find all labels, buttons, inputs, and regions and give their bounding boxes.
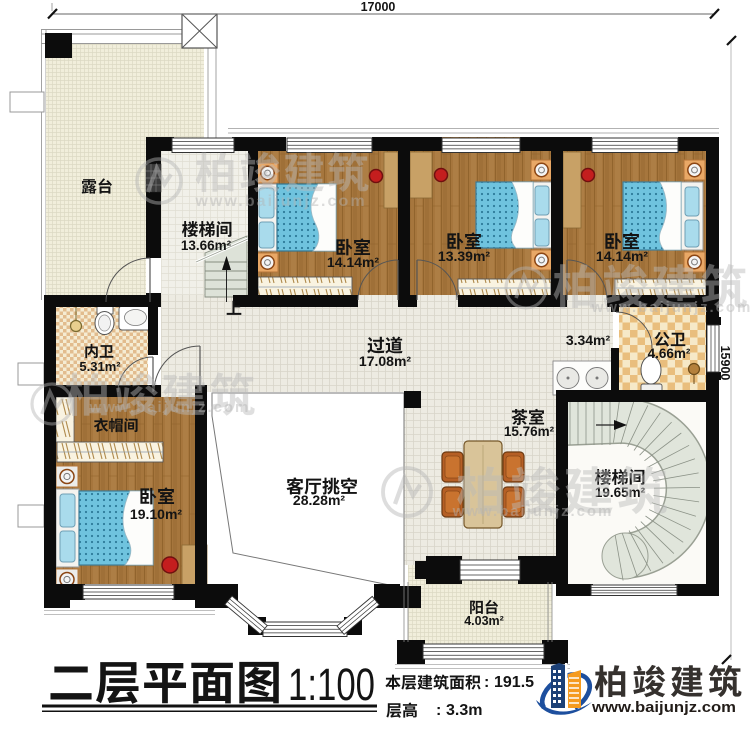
svg-text:17.08m²: 17.08m² <box>359 353 411 369</box>
svg-text::: : <box>436 702 441 719</box>
svg-text:17000: 17000 <box>361 0 396 14</box>
svg-text:www.baijunjz.com: www.baijunjz.com <box>452 503 614 520</box>
svg-text:4.66m²: 4.66m² <box>648 346 691 361</box>
svg-text:13.66m²: 13.66m² <box>181 238 232 253</box>
svg-text:1:100: 1:100 <box>288 659 375 710</box>
svg-text:14.14m²: 14.14m² <box>596 248 648 264</box>
svg-text:13.39m²: 13.39m² <box>438 248 490 264</box>
svg-text::: : <box>484 674 489 691</box>
svg-text:191.5: 191.5 <box>494 674 534 691</box>
svg-text:www.baijunjz.com: www.baijunjz.com <box>194 193 366 210</box>
svg-text:15.76m²: 15.76m² <box>504 424 555 439</box>
svg-text:www.baijunjz.com: www.baijunjz.com <box>591 700 736 716</box>
svg-text:5.31m²: 5.31m² <box>79 359 121 374</box>
svg-text:4.03m²: 4.03m² <box>464 614 504 628</box>
svg-text:28.28m²: 28.28m² <box>293 492 345 508</box>
svg-text:15900: 15900 <box>718 346 732 381</box>
svg-text:3.3m: 3.3m <box>446 702 482 719</box>
svg-text:19.10m²: 19.10m² <box>130 506 182 522</box>
svg-text:www.baijunjz.com: www.baijunjz.com <box>89 399 251 416</box>
svg-text:14.14m²: 14.14m² <box>327 254 379 270</box>
svg-text:3.34m²: 3.34m² <box>566 332 611 348</box>
svg-text:www.baijunjz.com: www.baijunjz.com <box>591 299 750 316</box>
